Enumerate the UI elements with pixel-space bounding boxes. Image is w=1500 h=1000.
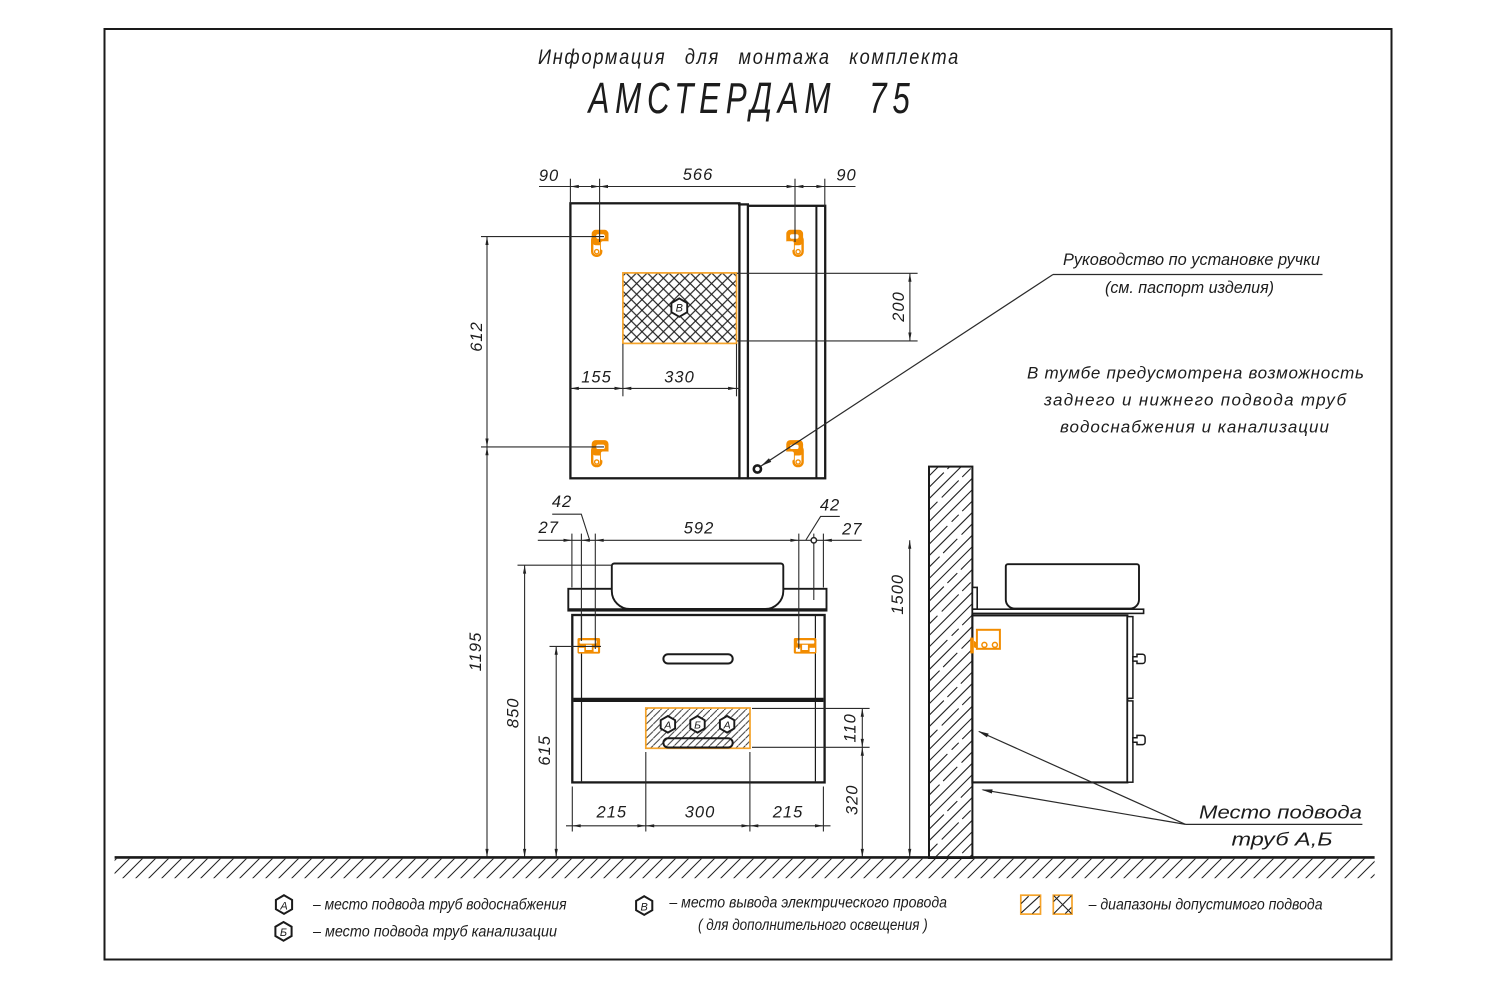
svg-text:200: 200	[890, 291, 908, 323]
svg-text:заднего и нижнего подвода труб: заднего и нижнего подвода труб	[1043, 391, 1347, 410]
svg-text:Место подвода: Место подвода	[1199, 802, 1362, 823]
svg-text:1195: 1195	[467, 632, 485, 671]
svg-text:90: 90	[836, 167, 856, 185]
svg-text:320: 320	[844, 785, 862, 816]
svg-text:( для дополнительного освещени: ( для дополнительного освещения )	[698, 917, 928, 934]
svg-text:330: 330	[664, 369, 695, 387]
svg-text:1500: 1500	[889, 574, 907, 615]
svg-text:615: 615	[536, 735, 554, 766]
svg-text:155: 155	[581, 369, 612, 387]
svg-text:труб А,Б: труб А,Б	[1232, 829, 1333, 850]
svg-text:215: 215	[596, 804, 628, 822]
svg-text:592: 592	[684, 520, 715, 538]
svg-text:42: 42	[820, 497, 840, 515]
svg-text:27: 27	[538, 519, 559, 537]
svg-text:АМСТЕРДАМ 75: АМСТЕРДАМ 75	[586, 74, 915, 123]
svg-text:А: А	[279, 900, 287, 912]
svg-text:– место подвода труб водоснабж: – место подвода труб водоснабжения	[312, 897, 566, 914]
svg-text:612: 612	[468, 321, 486, 352]
svg-text:(см. паспорт изделия): (см. паспорт изделия)	[1105, 278, 1274, 297]
svg-text:27: 27	[841, 521, 862, 539]
svg-text:42: 42	[552, 493, 572, 511]
svg-text:А: А	[663, 720, 671, 732]
svg-text:А: А	[723, 720, 731, 732]
svg-text:90: 90	[539, 167, 559, 185]
svg-text:Б: Б	[280, 927, 287, 939]
svg-text:– место вывода электрического: – место вывода электрического провода	[668, 895, 947, 912]
svg-text:215: 215	[772, 804, 804, 822]
svg-text:566: 566	[683, 166, 714, 184]
svg-text:110: 110	[842, 713, 860, 742]
svg-text:В тумбе предусмотрена возможно: В тумбе предусмотрена возможность	[1027, 364, 1364, 383]
svg-text:водоснабжения и канализации: водоснабжения и канализации	[1060, 417, 1330, 436]
svg-text:Руководство по установке ручки: Руководство по установке ручки	[1063, 250, 1321, 269]
svg-text:В: В	[641, 901, 648, 913]
svg-text:– диапазоны допустимого подвод: – диапазоны допустимого подвода	[1088, 897, 1323, 914]
svg-text:Информация для монтажа комплек: Информация для монтажа комплекта	[538, 45, 960, 69]
svg-text:850: 850	[505, 698, 523, 729]
svg-text:Б: Б	[694, 720, 701, 732]
svg-text:– место подвода труб канализац: – место подвода труб канализации	[312, 924, 557, 941]
svg-text:В: В	[676, 303, 683, 315]
svg-text:300: 300	[685, 804, 716, 822]
